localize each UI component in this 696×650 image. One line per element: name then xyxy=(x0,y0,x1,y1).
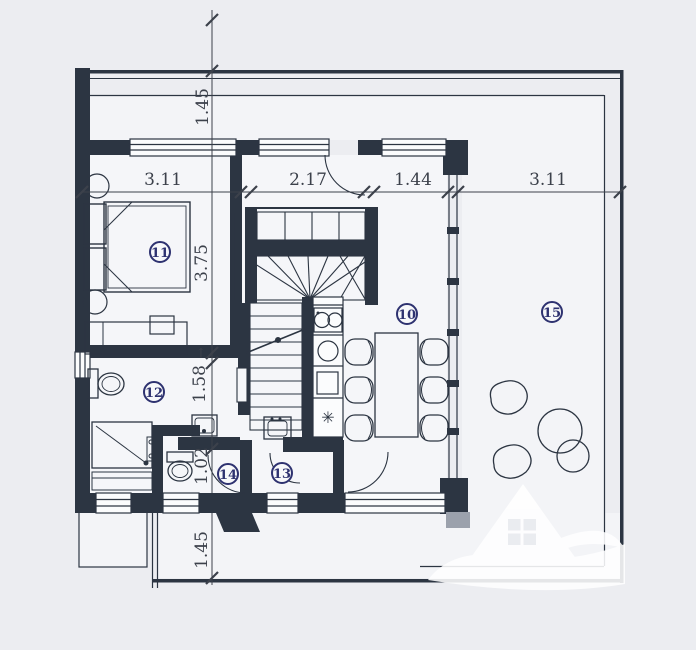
boiler xyxy=(237,368,247,402)
kitchen-counter: ✳ xyxy=(313,297,343,437)
floor-plan-canvas: ✳ xyxy=(0,0,696,650)
window-top-2 xyxy=(259,139,329,156)
glass-wall xyxy=(447,175,459,478)
window-bottom-living xyxy=(345,493,445,513)
window-bottom-1 xyxy=(96,493,131,513)
floor-plan-drawing: ✳ xyxy=(0,0,696,650)
window-top-1 xyxy=(130,139,236,156)
window-bottom-3 xyxy=(267,493,298,513)
window-top-3 xyxy=(382,139,446,156)
window-bottom-2 xyxy=(163,493,199,513)
fridge-symbol: ✳ xyxy=(321,408,334,427)
